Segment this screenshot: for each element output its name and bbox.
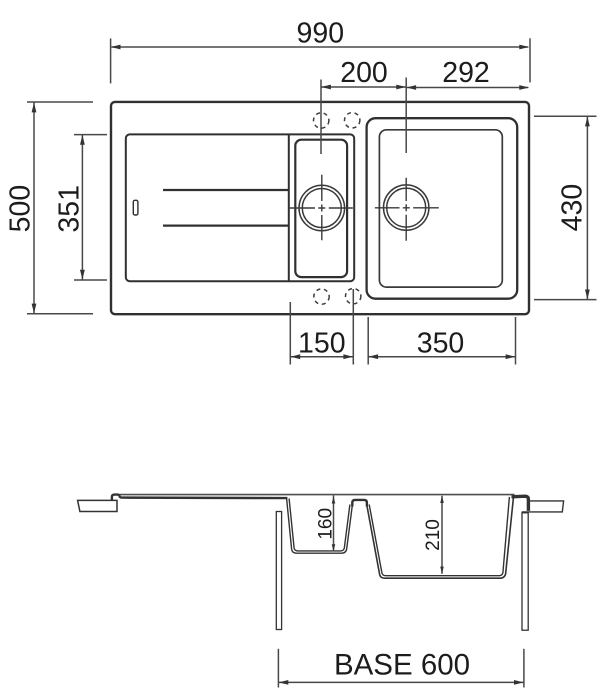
svg-text:150: 150	[298, 327, 346, 359]
svg-text:430: 430	[557, 184, 589, 232]
svg-text:200: 200	[340, 57, 388, 89]
svg-text:500: 500	[5, 185, 37, 233]
svg-text:160: 160	[316, 508, 337, 540]
svg-text:BASE 600: BASE 600	[334, 649, 470, 682]
svg-text:990: 990	[297, 17, 345, 49]
svg-text:351: 351	[54, 185, 86, 233]
svg-text:210: 210	[423, 519, 444, 551]
svg-text:292: 292	[442, 57, 490, 89]
svg-text:350: 350	[417, 327, 465, 359]
